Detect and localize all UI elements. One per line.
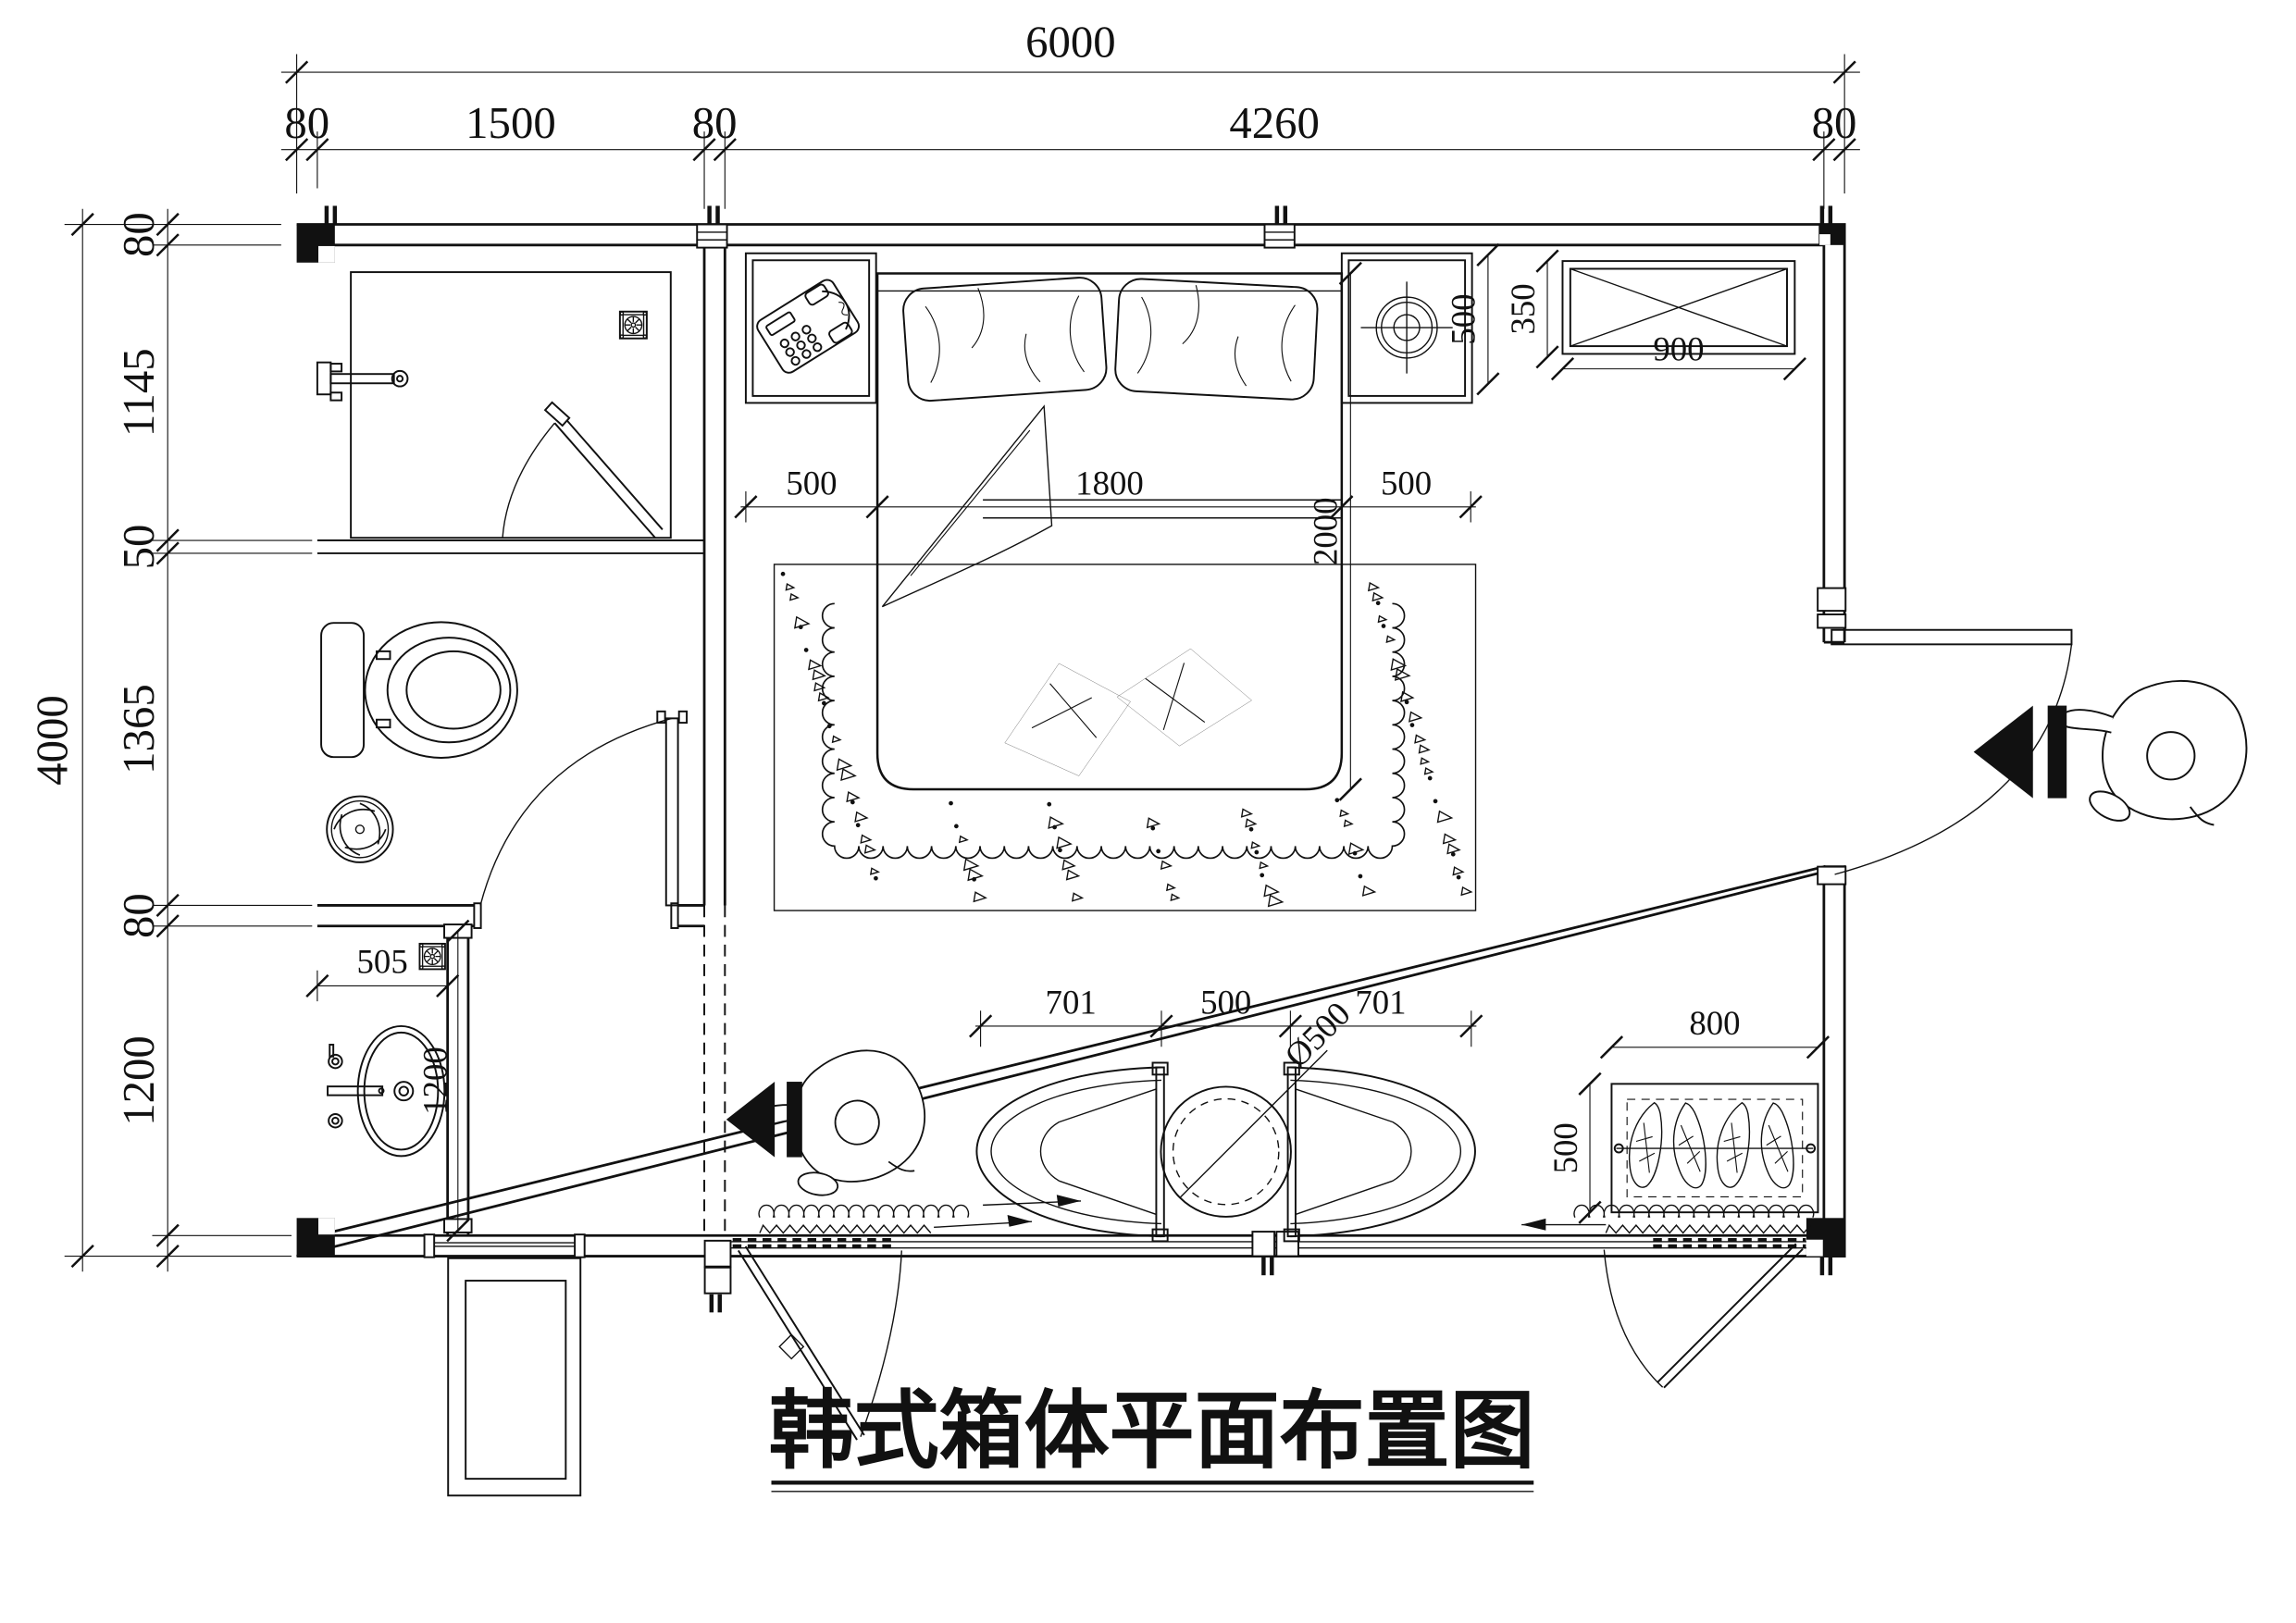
floor-plan-drawing: 6000 80 1500 80 4260 80 4000 80 1145 50 … [0, 0, 2296, 1623]
rug-texture [781, 573, 1471, 907]
dim-left-4: 80 [114, 893, 164, 938]
dim-vanity-width: 505 [357, 942, 408, 980]
dim-vanity-depth: 1200 [416, 1047, 453, 1115]
dim-planter-width: 800 [1689, 1004, 1740, 1042]
toilet [321, 622, 517, 758]
dim-chair-right: 701 [1355, 984, 1406, 1022]
bed-pillow [901, 276, 1108, 402]
dim-left-3: 1365 [114, 684, 164, 774]
armchair-left [976, 1062, 1167, 1241]
dim-left-0: 80 [114, 212, 164, 257]
dim-bed-width: 1800 [1075, 465, 1144, 502]
lamp-icon [1360, 281, 1452, 373]
dim-bed-length: 2000 [1307, 497, 1345, 565]
floor-drain-icon [419, 944, 445, 970]
diamond-marker-icon [779, 1334, 803, 1358]
dim-bed-right-gap: 500 [1381, 465, 1432, 502]
exterior-door-bottom-right [1604, 1244, 1803, 1388]
dim-bed-left-gap: 500 [786, 465, 837, 502]
deco-pillows [1005, 649, 1252, 775]
dim-table-gap: 500 [1200, 984, 1251, 1022]
title-block: 韩式箱体平面布置图 [769, 1334, 1535, 1491]
plant-leaf-icon [1756, 1101, 1797, 1190]
drawing-title: 韩式箱体平面布置图 [769, 1381, 1535, 1481]
bathroom-door [480, 712, 687, 906]
planter-box [1611, 1084, 1818, 1212]
dim-top-4: 80 [1812, 98, 1857, 148]
dim-cabinet-width: 900 [1653, 330, 1704, 368]
rug [775, 564, 1476, 911]
person-figure [2054, 681, 2246, 827]
shower-head-icon [317, 363, 408, 401]
dim-planter-depth: 500 [1546, 1122, 1584, 1173]
dim-top-3: 4260 [1229, 98, 1320, 148]
floor-drain-icon [620, 312, 647, 339]
dim-overall-width: 6000 [1025, 17, 1116, 67]
plant-leaf-icon [1624, 1100, 1668, 1189]
dim-overall-height: 4000 [27, 695, 77, 786]
slide-direction-squiggle [760, 1225, 931, 1233]
rug-scallop-border [823, 603, 1405, 858]
dim-nightstand-depth: 500 [1444, 294, 1482, 345]
exterior-step [448, 1258, 580, 1495]
dim-left-1: 1145 [114, 348, 164, 437]
armchair-right [1285, 1062, 1475, 1241]
round-table [1160, 1050, 1327, 1217]
slide-direction-squiggle [1606, 1225, 1810, 1233]
plant-leaf-icon [1669, 1101, 1709, 1190]
dim-left-5: 1200 [114, 1035, 164, 1126]
curtain-symbol [759, 1205, 968, 1217]
telephone-icon [754, 277, 862, 376]
bed [877, 273, 1342, 789]
curtain-symbol [1574, 1205, 1814, 1217]
floor-plan-page: 6000 80 1500 80 4260 80 4000 80 1145 50 … [0, 0, 2296, 1623]
floor-drain-swirl-icon [327, 797, 392, 862]
bed-pillow [1114, 278, 1319, 401]
dim-cabinet-depth: 350 [1504, 283, 1542, 334]
dim-chair-left: 701 [1046, 984, 1097, 1022]
entry-arrow-icon [1974, 706, 2067, 799]
dim-left-2: 50 [114, 525, 164, 570]
plant-leaf-icon [1712, 1100, 1756, 1189]
frame-posts [297, 205, 1846, 1312]
entry-door-right [1831, 630, 2071, 874]
dim-top-0: 80 [284, 98, 329, 148]
dim-top-2: 80 [692, 98, 738, 148]
dimension-labels: 6000 80 1500 80 4260 80 4000 80 1145 50 … [27, 17, 1856, 1173]
dim-top-1: 1500 [465, 98, 556, 148]
